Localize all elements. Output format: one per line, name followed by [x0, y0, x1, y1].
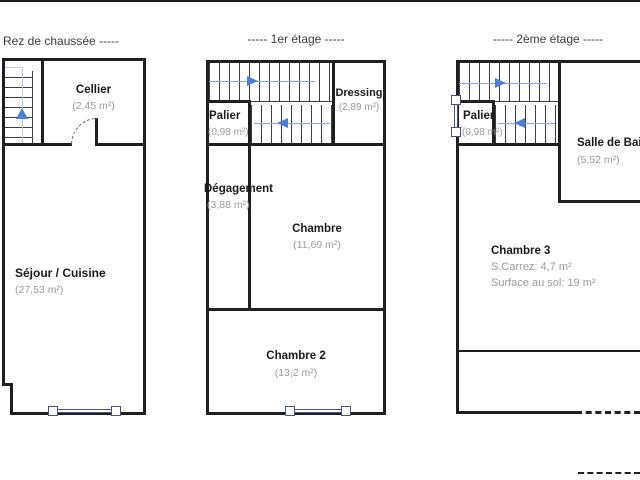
- window-symbol-end: [48, 406, 58, 416]
- stair-direction-line: [498, 123, 555, 124]
- window-symbol-end: [111, 406, 121, 416]
- wall: [2, 58, 146, 61]
- wall-dashed-under-eaves: [576, 411, 640, 414]
- wall: [558, 200, 640, 203]
- stair-rail-line: [32, 71, 33, 143]
- stair-guide-line: [22, 67, 23, 143]
- room-area-sejour-cuisine: (27,53 m²): [15, 284, 63, 296]
- room-area-palier: (0,98 m²): [208, 127, 249, 139]
- room-label-salle-de-bain: Salle de Bain: [577, 137, 640, 150]
- stair-direction-line: [209, 81, 315, 82]
- wall: [206, 143, 386, 146]
- room-area-dressing: (2,89 m²): [331, 102, 387, 114]
- room-label-chambre-2: Chambre 2: [206, 350, 386, 363]
- stair-direction-up-arrow-icon: [16, 108, 28, 119]
- wall: [456, 60, 640, 63]
- room-area-chambre-2: (13,2 m²): [206, 367, 386, 379]
- stair-direction-right-arrow-icon: [247, 76, 258, 86]
- floor-plan-canvas: Rez de chaussée ----- ----- 1er étage --…: [0, 0, 640, 480]
- wall: [10, 383, 13, 415]
- room-label-cellier: Cellier: [44, 84, 143, 97]
- stair-direction-line: [254, 123, 330, 124]
- stair-run-divider: [495, 101, 560, 102]
- window-symbol-end: [451, 95, 461, 105]
- stair-treads: [209, 63, 332, 101]
- room-area-chambre-3-sol: Surface au sol: 19 m²: [491, 277, 596, 290]
- floor-title-ground: Rez de chaussée -----: [3, 34, 119, 48]
- wall: [456, 411, 576, 414]
- room-label-chambre-3: Chambre 3: [491, 245, 550, 258]
- floor-title-second: ----- 2ème étage -----: [456, 32, 640, 46]
- window-symbol-end: [451, 127, 461, 137]
- stair-direction-left-arrow-icon: [514, 118, 525, 128]
- room-area-chambre-3-carrez: S.Carrez: 4,7 m²: [491, 261, 572, 274]
- wall: [456, 143, 561, 146]
- room-label-chambre: Chambre: [251, 223, 383, 236]
- low-ceiling-limit-line: [456, 350, 640, 352]
- wall: [206, 308, 386, 311]
- room-area-degagement: (3,88 m²): [207, 199, 250, 211]
- room-area-palier-2: (0,98 m²): [462, 127, 503, 139]
- wall: [2, 143, 72, 146]
- frame-bottom-border: [0, 0, 578, 2]
- stair-run-divider: [251, 101, 332, 102]
- door-swing-arc-icon: [71, 118, 97, 145]
- wall: [2, 58, 5, 386]
- room-label-dressing: Dressing: [333, 87, 385, 100]
- room-label-palier-2: Palier: [463, 110, 494, 123]
- stair-treads: [495, 105, 560, 143]
- frame-bottom-border-dashed: [578, 472, 640, 474]
- room-label-degagement: Dégagement: [204, 183, 273, 196]
- window-symbol: [291, 409, 347, 413]
- wall: [143, 58, 146, 415]
- stair-direction-left-arrow-icon: [277, 118, 288, 128]
- wall: [206, 100, 251, 103]
- room-area-chambre: (11,69 m²): [251, 239, 383, 251]
- room-area-cellier: (2,45 m²): [44, 100, 143, 112]
- room-area-salle-de-bain: (5,52 m²): [577, 154, 620, 166]
- window-symbol: [54, 409, 117, 413]
- floor-title-first: ----- 1er étage -----: [206, 32, 386, 46]
- window-symbol-end: [285, 406, 295, 416]
- wall: [558, 60, 561, 203]
- stair-direction-right-arrow-icon: [495, 78, 506, 88]
- room-label-palier: Palier: [209, 110, 240, 123]
- window-symbol-end: [341, 406, 351, 416]
- wall: [248, 100, 251, 146]
- stair-treads: [251, 105, 332, 143]
- stair-treads: [459, 63, 560, 101]
- wall: [97, 143, 146, 146]
- wall: [456, 100, 495, 103]
- room-label-sejour-cuisine: Séjour / Cuisine: [15, 267, 106, 280]
- stair-guide-line: [4, 67, 23, 68]
- wall: [206, 60, 386, 63]
- wall: [492, 100, 495, 146]
